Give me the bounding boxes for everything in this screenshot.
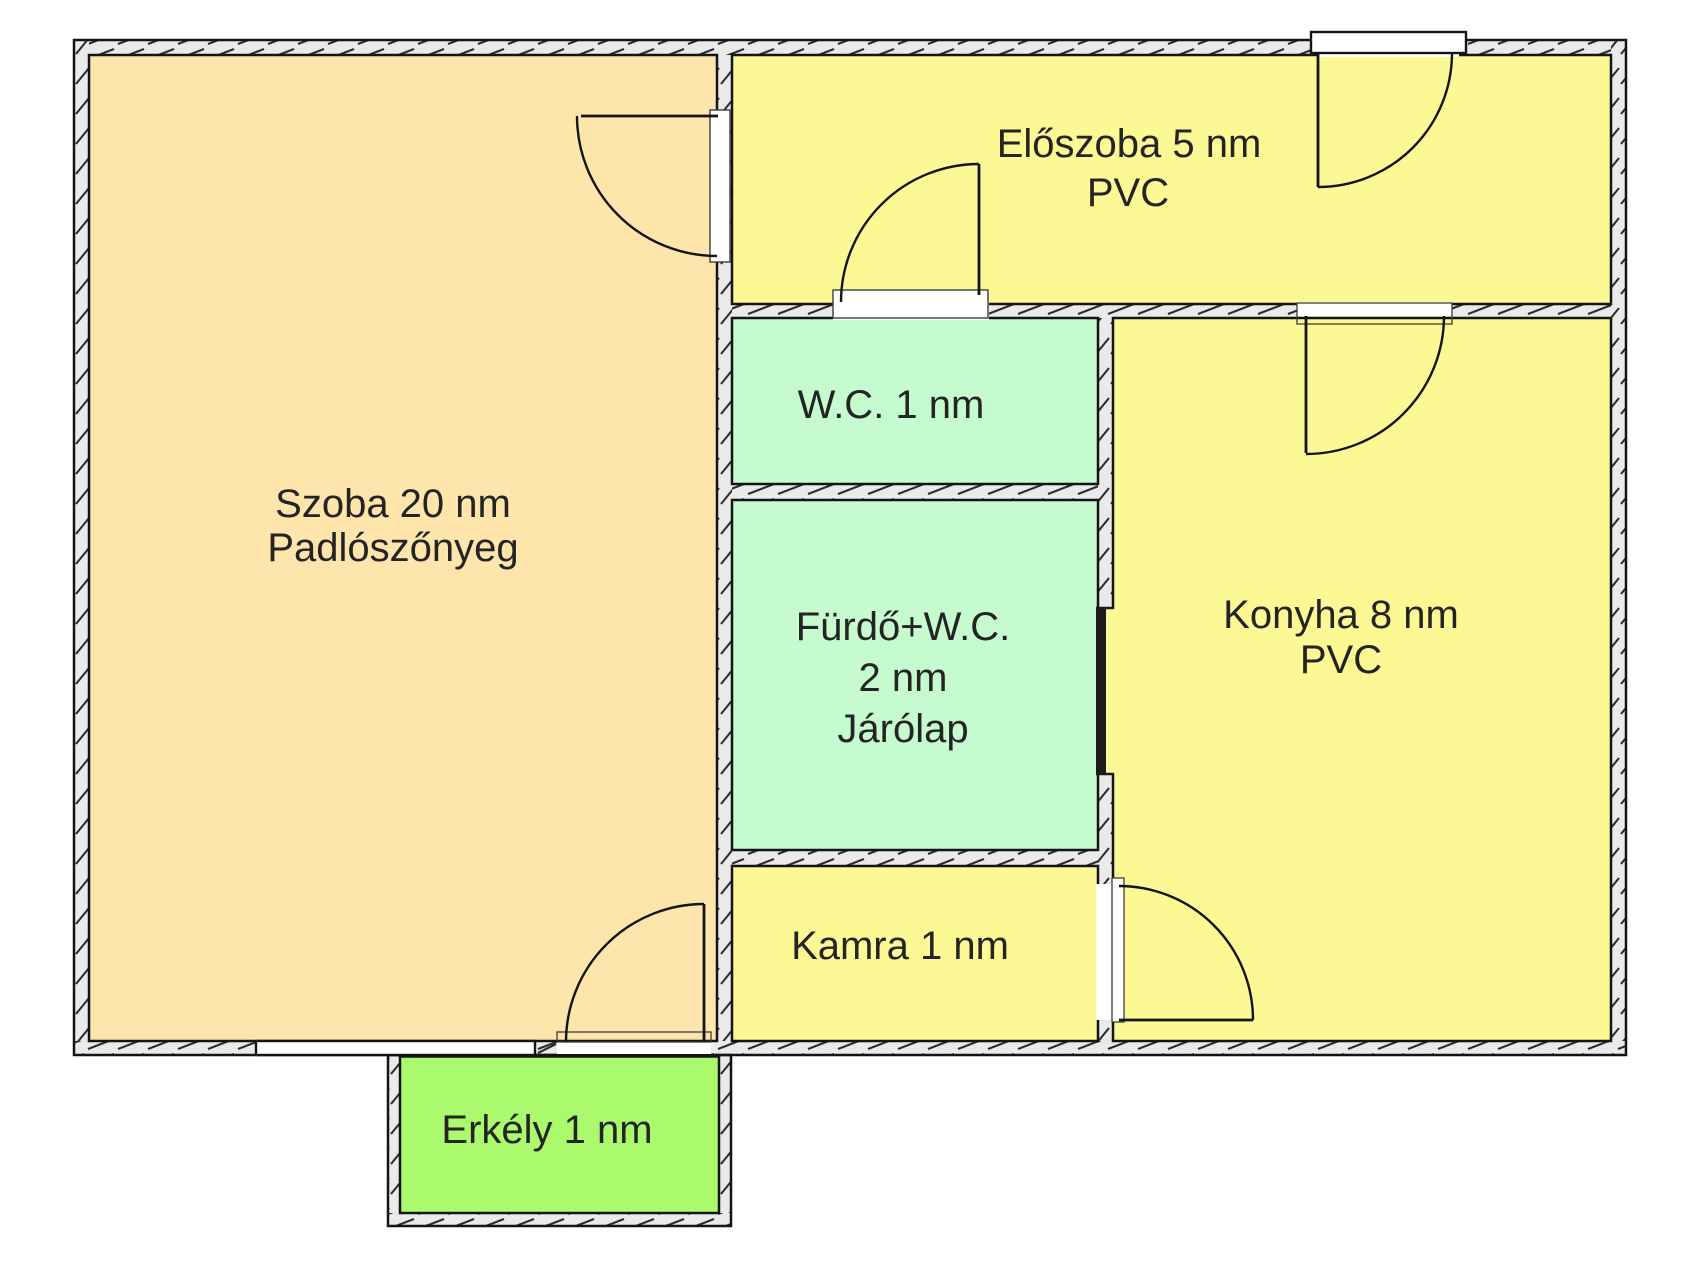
svg-text:2 nm: 2 nm xyxy=(859,656,948,700)
svg-text:Kamra 1 nm: Kamra 1 nm xyxy=(791,924,1009,968)
svg-text:Padlószőnyeg: Padlószőnyeg xyxy=(267,526,518,570)
svg-text:PVC: PVC xyxy=(1300,638,1382,682)
svg-text:Erkély 1 nm: Erkély 1 nm xyxy=(441,1108,652,1152)
svg-text:Előszoba 5 nm: Előszoba 5 nm xyxy=(997,122,1262,166)
svg-text:Fürdő+W.C.: Fürdő+W.C. xyxy=(796,605,1011,649)
svg-text:W.C. 1 nm: W.C. 1 nm xyxy=(798,383,985,427)
svg-text:Járólap: Járólap xyxy=(837,707,968,751)
svg-text:Konyha 8 nm: Konyha 8 nm xyxy=(1223,593,1459,637)
svg-text:PVC: PVC xyxy=(1087,171,1169,215)
svg-text:Szoba 20 nm: Szoba 20 nm xyxy=(275,482,511,526)
